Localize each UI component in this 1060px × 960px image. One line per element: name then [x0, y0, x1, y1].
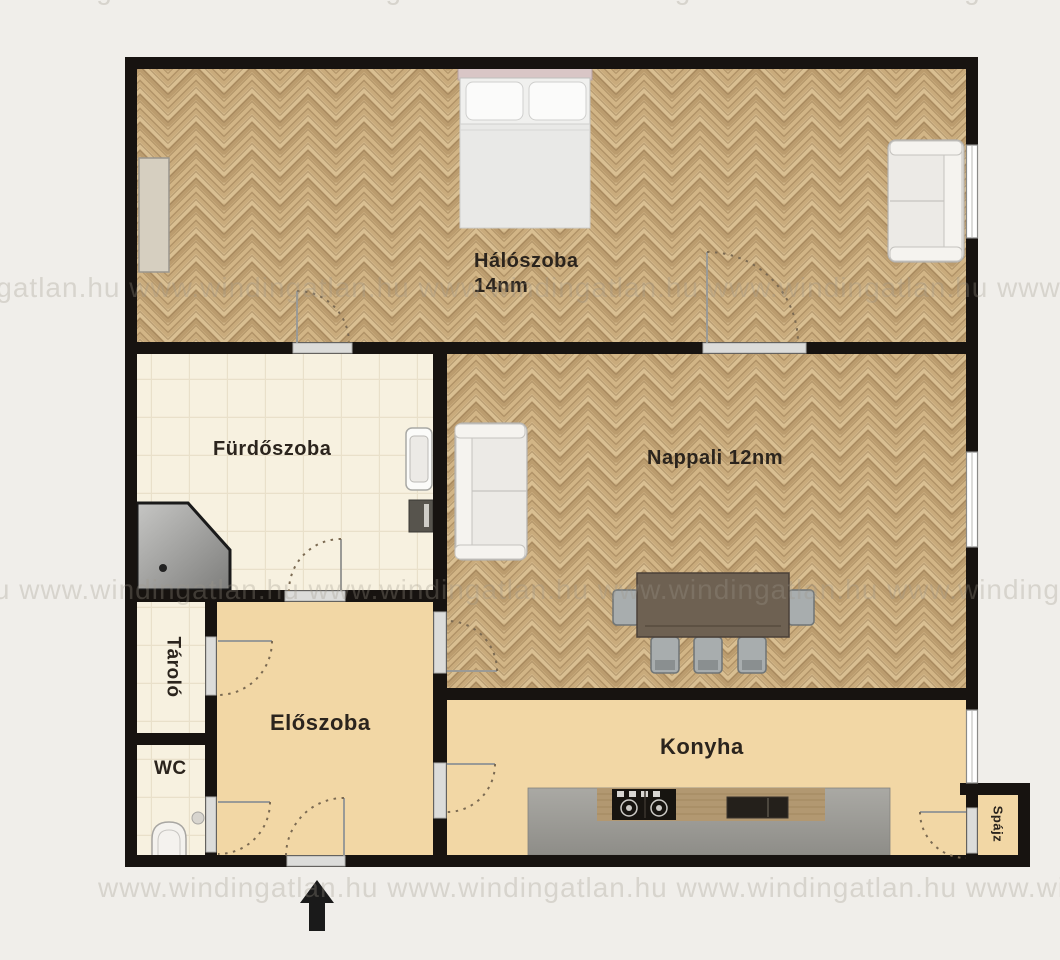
bedroom-living-door-sill — [703, 343, 806, 353]
bedroom-bathroom-door-sill — [293, 343, 352, 353]
living-room-sofa — [455, 423, 527, 560]
hallway-kitchen-door-sill — [434, 763, 446, 818]
storage-door-sill — [206, 637, 216, 695]
kitchen-label: Konyha — [660, 734, 744, 760]
wc-door-sill — [206, 797, 216, 852]
washbasin — [406, 428, 432, 490]
kitchen-counter — [528, 788, 890, 855]
floorplan-page: { "title": "Apartment floor plan", "wate… — [0, 0, 1060, 960]
living-room-window — [967, 452, 978, 547]
bathroom-door-sill — [285, 591, 345, 601]
wall-pantry-right — [1018, 783, 1030, 867]
stove — [612, 789, 676, 820]
wc-label: WC — [154, 757, 187, 780]
dining-chair — [788, 590, 814, 625]
bedroom-wardrobe — [139, 158, 169, 272]
wall-bottom — [125, 855, 978, 867]
bedroom-label: Hálószoba 14nm — [474, 249, 579, 299]
bedroom-window — [967, 145, 978, 238]
bedroom-name: Hálószoba — [474, 249, 579, 274]
entrance-arrow-icon — [300, 880, 334, 931]
living-room-label: Nappali 12nm — [647, 446, 783, 471]
bed — [458, 66, 592, 228]
storage-label: Tároló — [162, 636, 185, 697]
pantry-door-sill — [967, 808, 977, 853]
wall-bedroom-south — [125, 342, 978, 354]
wall-top — [125, 57, 978, 69]
floorplan-canvas — [0, 0, 1060, 960]
bathroom-cabinet — [409, 500, 433, 532]
entrance-door-sill — [287, 856, 345, 866]
bathroom-label: Fürdőszoba — [213, 437, 331, 462]
bedroom-area: 14nm — [474, 274, 579, 299]
wall-kitchen-north — [433, 688, 978, 700]
dining-chair — [613, 590, 639, 625]
kitchen-sink — [727, 797, 788, 818]
wall-storage-wc — [125, 733, 217, 745]
wall-pantry-bottom — [960, 855, 1030, 867]
bedroom-sofa — [888, 140, 964, 262]
kitchen-window — [967, 710, 978, 783]
pantry-label: Spájz — [991, 806, 1006, 842]
hallway-label: Előszoba — [270, 710, 371, 736]
hallway-living-door-sill — [434, 612, 446, 673]
wall-left — [125, 57, 137, 867]
